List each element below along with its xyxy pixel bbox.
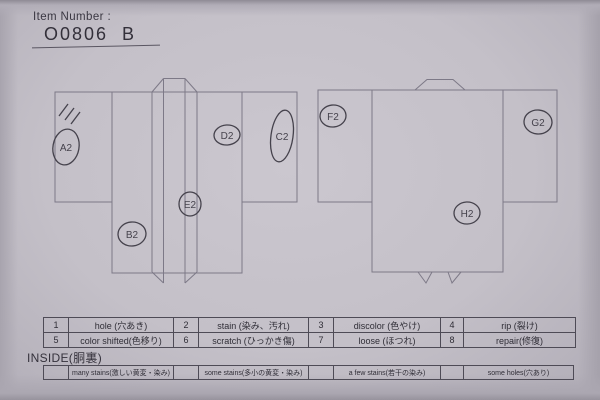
defect-num: 2	[174, 318, 199, 333]
defect-num: 5	[44, 333, 69, 348]
svg-text:G2: G2	[531, 118, 545, 129]
defect-num: 8	[441, 333, 464, 348]
marker-b2: B2	[117, 221, 147, 247]
marker-e2: E2	[179, 192, 201, 216]
defect-num: 7	[309, 333, 334, 348]
defect-label: stain (染み、汚れ)	[199, 318, 309, 333]
svg-text:B2: B2	[126, 230, 139, 241]
inside-option-label: a few stains(若干の染み)	[334, 366, 441, 380]
table-row: 5 color shifted(色移り) 6 scratch (ひっかき傷) 7…	[44, 333, 576, 348]
marker-h2: H2	[453, 201, 480, 224]
checkbox-cell	[44, 366, 69, 380]
defect-num: 1	[44, 318, 69, 333]
kimono-back-outline	[318, 80, 557, 284]
marker-f2: F2	[319, 104, 347, 129]
back-hem-notch-left	[418, 272, 432, 283]
marker-d2: D2	[213, 124, 240, 146]
marker-c2: C2	[267, 109, 296, 164]
defect-num: 4	[441, 318, 464, 333]
inside-option-label: some stains(多小の黄変・染み)	[199, 366, 309, 380]
hatch-marks	[59, 104, 80, 124]
inside-section-title: INSIDE(胴裏)	[27, 349, 102, 366]
svg-text:F2: F2	[327, 112, 339, 123]
defect-label: loose (ほつれ)	[334, 333, 441, 348]
svg-text:D2: D2	[221, 131, 234, 142]
checkbox-cell	[441, 366, 464, 380]
checkbox-cell	[309, 366, 334, 380]
marker-g2: G2	[523, 109, 553, 135]
back-right-sleeve	[503, 90, 557, 202]
inside-option-label: some holes(穴あり)	[464, 366, 574, 380]
svg-text:E2: E2	[184, 200, 197, 211]
front-right-sleeve	[242, 92, 297, 202]
back-hem-notch-right	[448, 272, 461, 283]
table-row: many stains(激しい黄変・染み) some stains(多小の黄変・…	[44, 366, 574, 380]
defect-label: rip (裂け)	[464, 318, 576, 333]
inside-options-table: many stains(激しい黄変・染み) some stains(多小の黄変・…	[43, 365, 574, 380]
kimono-front-outline	[55, 79, 297, 284]
back-body	[372, 90, 503, 272]
defect-markers: A2 B2 C2 D2 E2 F2	[50, 104, 553, 247]
defect-label: hole (穴あき)	[69, 318, 174, 333]
back-collar	[415, 80, 465, 91]
svg-text:H2: H2	[461, 209, 474, 220]
checkbox-cell	[174, 366, 199, 380]
defect-num: 6	[174, 333, 199, 348]
inside-option-label: many stains(激しい黄変・染み)	[69, 366, 174, 380]
svg-text:A2: A2	[60, 143, 73, 154]
table-row: 1 hole (穴あき) 2 stain (染み、汚れ) 3 discolor …	[44, 318, 576, 333]
photographed-inspection-form: Item Number : O0806 B	[0, 0, 600, 400]
defect-legend-table: 1 hole (穴あき) 2 stain (染み、汚れ) 3 discolor …	[43, 317, 576, 348]
defect-num: 3	[309, 318, 334, 333]
defect-label: color shifted(色移り)	[69, 333, 174, 348]
defect-label: discolor (色やけ)	[334, 318, 441, 333]
defect-label: repair(修復)	[464, 333, 576, 348]
svg-text:C2: C2	[276, 132, 289, 143]
defect-label: scratch (ひっかき傷)	[199, 333, 309, 348]
